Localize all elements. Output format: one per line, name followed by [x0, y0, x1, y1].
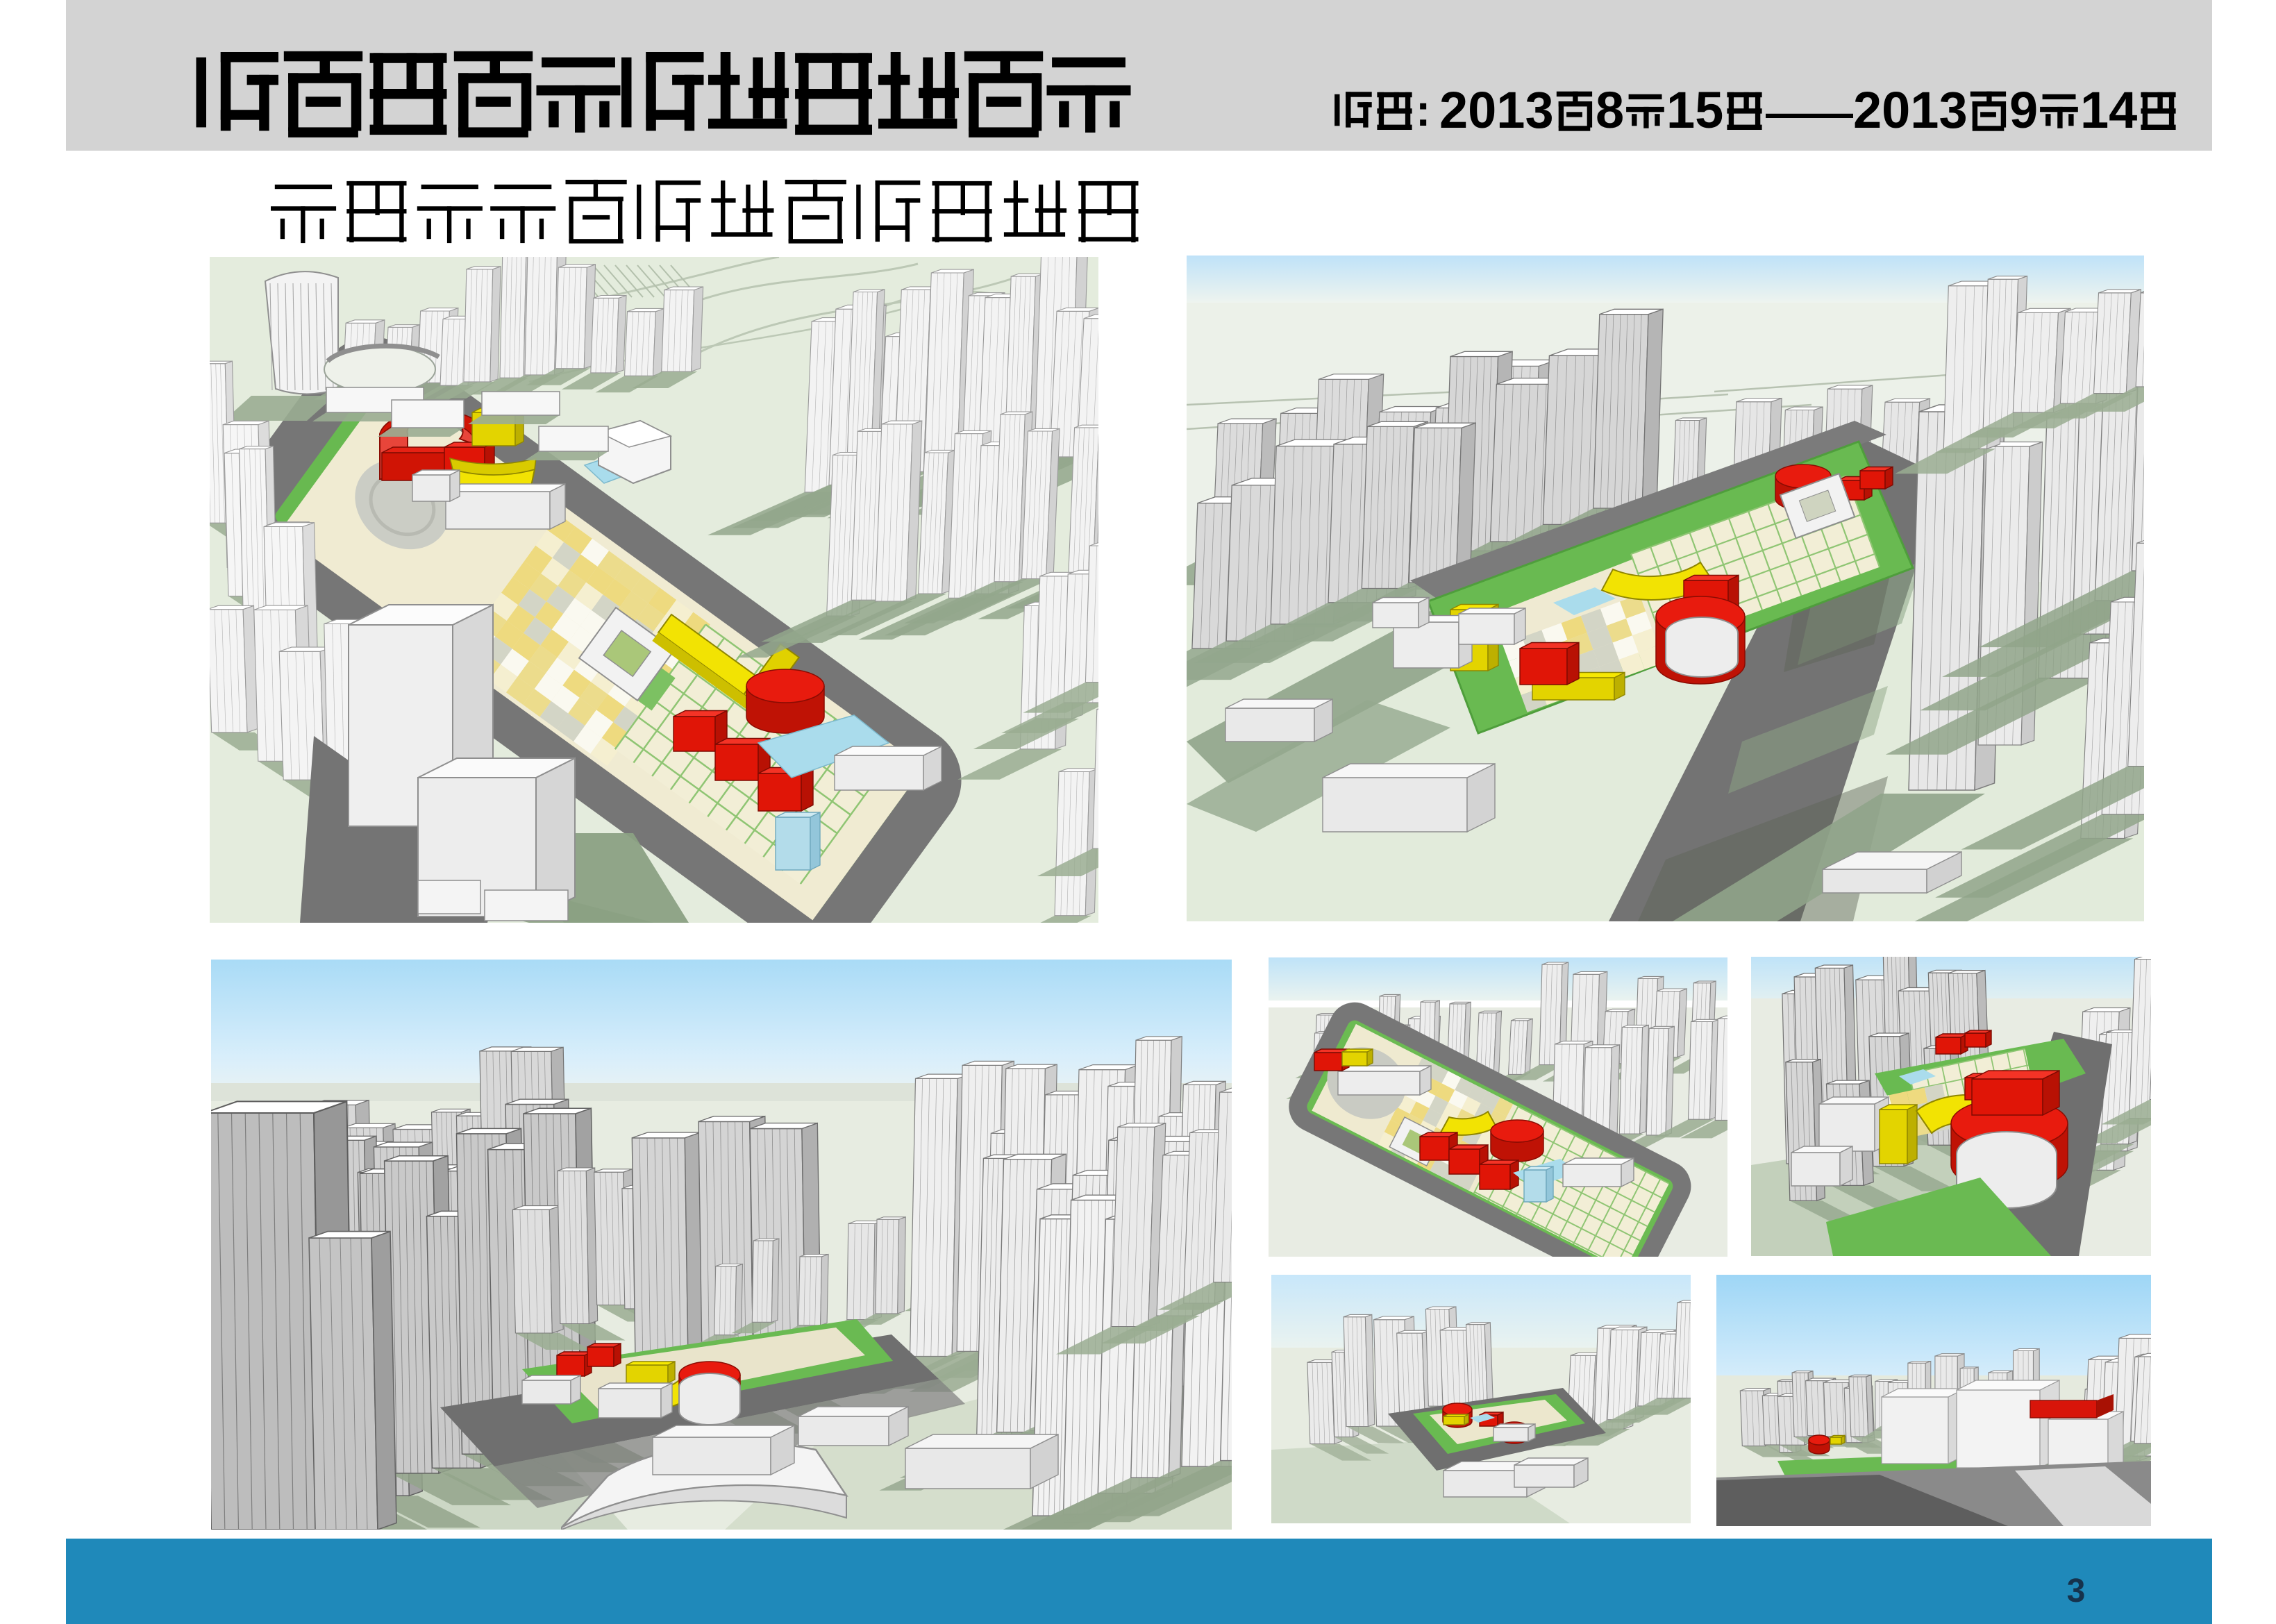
svg-text:——: ——: [1766, 89, 1853, 137]
svg-text:15: 15: [1666, 81, 1723, 139]
svg-text:2013: 2013: [1439, 81, 1554, 139]
svg-text:2013: 2013: [1853, 81, 1968, 139]
svg-text::: :: [1416, 85, 1430, 135]
svg-text:8: 8: [1596, 81, 1624, 139]
svg-text:14: 14: [2080, 81, 2137, 139]
svg-text:9: 9: [2009, 81, 2038, 139]
